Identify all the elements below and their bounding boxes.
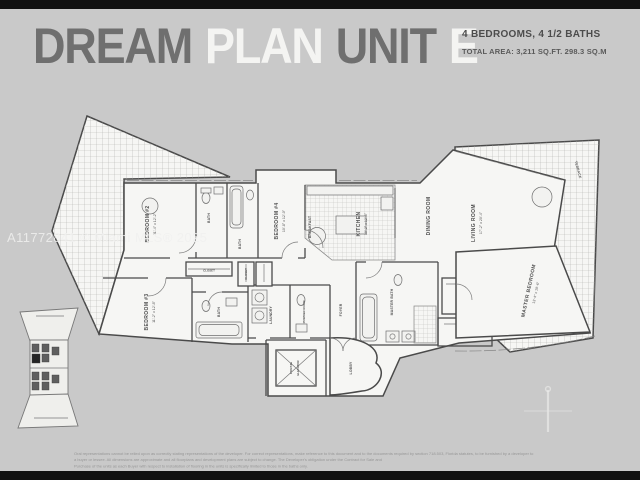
- laundry-label: LAUNDRY: [269, 306, 273, 324]
- unit-stats: 4 BEDROOMS, 4 1/2 BATHS TOTAL AREA: 3,21…: [462, 29, 607, 56]
- disclaimer-line-2: Purchase of the units as each Buyer with…: [74, 463, 534, 469]
- title-word-unit: UNIT: [336, 17, 436, 74]
- top-letterbox-bar: [0, 0, 640, 9]
- mls-watermark: A11772841 © Miami MLS® 2025: [7, 230, 207, 245]
- disclaimer-line-1: Oral representations cannot be relied up…: [74, 451, 534, 463]
- compass-icon: [524, 387, 572, 432]
- elevator-label-1: PRIVATE: [289, 362, 293, 374]
- bath2-label: BATH: [207, 213, 211, 223]
- powder-room-label: POWDER ROOM: [302, 300, 306, 323]
- bedroom4-label: BEDROOM #4: [274, 202, 280, 239]
- elevator-label-2: ELEVATOR: [296, 359, 300, 375]
- bedrooms-baths-text: 4 BEDROOMS, 4 1/2 BATHS: [462, 29, 607, 40]
- living-dim: 17'-2" x 20'-4": [479, 211, 483, 234]
- closet-label-2: CLOSET: [244, 268, 248, 280]
- bedroom4-dim: 10'-8" x 12'-0": [282, 209, 286, 232]
- bedroom3-label: BEDROOM #3: [144, 293, 150, 330]
- disclaimer: Oral representations cannot be relied up…: [74, 451, 534, 480]
- kitchen-label: KITCHEN: [356, 211, 362, 236]
- bath3-label: BATH: [217, 307, 221, 317]
- living-label: LIVING ROOM: [471, 204, 477, 242]
- foyer-label: FOYER: [339, 303, 343, 316]
- listing-floorplan-image: TERRACE TERRACE: [0, 0, 640, 480]
- kitchen-dim: 10'-2" x 12'-6": [364, 212, 368, 235]
- page-title: DREAMPLANUNITE: [33, 17, 491, 75]
- total-area-text: TOTAL AREA: 3,211 SQ.FT. 298.3 SQ.M: [462, 47, 607, 56]
- closet-label-1: CLOSET: [203, 269, 215, 273]
- master-bath-label: MASTER BATH: [390, 288, 394, 315]
- building-key-plan: [18, 308, 78, 428]
- bedroom3-dim: 11'-2" x 12'-8": [152, 300, 156, 323]
- bath4-label: BATH: [238, 239, 242, 249]
- title-word-plan: PLAN: [205, 17, 323, 74]
- title-word-dream: DREAM: [33, 17, 192, 74]
- breakfast-label: BREAKFAST: [308, 215, 312, 238]
- dining-label: DINING ROOM: [426, 197, 432, 236]
- lobby-label: LOBBY: [349, 361, 353, 374]
